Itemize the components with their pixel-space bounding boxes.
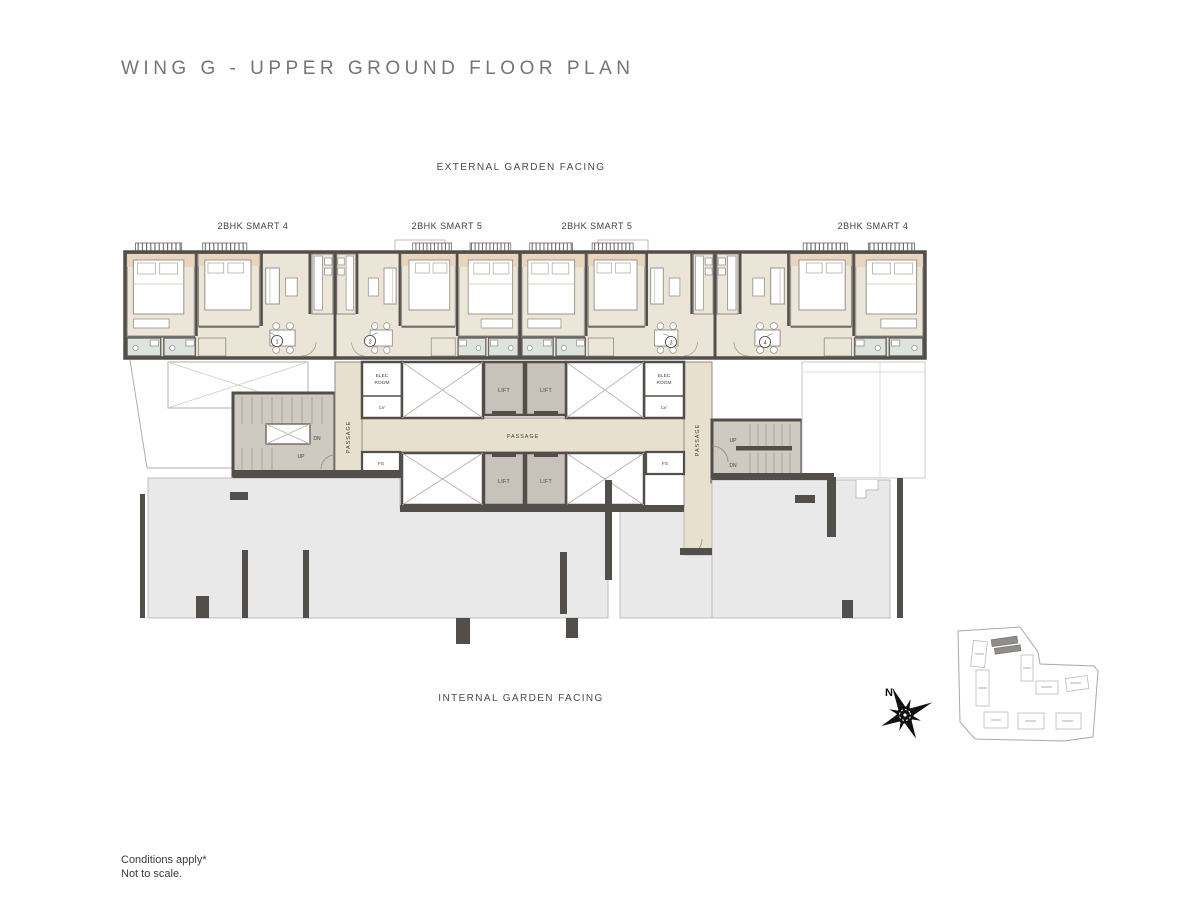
lift-3-label: LIFT	[498, 479, 510, 485]
passage-right-vertical	[684, 362, 712, 555]
floor-plan-drawing: 2BHK SMART 4 2BHK SMART 5 2BHK SMART 5 2…	[0, 0, 1200, 900]
lv-right-label: LV	[661, 405, 667, 411]
right-terrace	[802, 362, 925, 478]
entrance-3-number: 3	[669, 340, 672, 346]
lv-left-label: LV	[379, 405, 385, 411]
unit-3-label: 2BHK SMART 5	[562, 221, 633, 231]
stairwell-left: DN UP	[233, 393, 335, 478]
passage-right-label: PASSAGE	[695, 424, 701, 456]
north-label: N	[885, 687, 893, 699]
entrance-1-number: 1	[275, 339, 278, 345]
unit-2-plan	[335, 243, 520, 358]
key-plan	[958, 627, 1098, 741]
fs-left-label: FS	[378, 461, 384, 467]
lift-1-label: LIFT	[498, 388, 510, 394]
elec-room-left-label-1: ELEC	[376, 373, 389, 379]
stairwell-right: UP DN	[712, 420, 802, 482]
unit-2-label: 2BHK SMART 5	[412, 221, 483, 231]
unit-4-label: 2BHK SMART 4	[838, 221, 909, 231]
passage-left-label: PASSAGE	[346, 421, 352, 453]
apartment-band	[125, 240, 925, 358]
elec-room-right: ELEC ROOM LV	[644, 362, 684, 418]
unit-4-plan	[715, 243, 925, 358]
elec-room-right-label-1: ELEC	[658, 373, 671, 379]
entrance-4-number: 4	[763, 340, 766, 346]
fs-right-label: FS	[662, 461, 668, 467]
stair-right-dn-label: DN	[729, 463, 737, 469]
stair-left-up-label: UP	[298, 454, 306, 460]
north-compass: N	[869, 675, 943, 749]
unit-1-label: 2BHK SMART 4	[218, 221, 289, 231]
stair-left-dn-label: DN	[313, 436, 321, 442]
unit-3-plan	[520, 243, 715, 358]
entrance-2-number: 2	[368, 339, 371, 345]
passage-left-vertical	[335, 362, 362, 478]
elec-room-left: ELEC ROOM LV	[362, 362, 402, 418]
lift-2-label: LIFT	[540, 388, 552, 394]
passage-center-label: PASSAGE	[507, 434, 539, 440]
unit-1-plan	[125, 243, 335, 358]
elec-room-left-label-2: ROOM	[375, 380, 390, 386]
stair-right-up-label: UP	[730, 438, 738, 444]
elec-room-right-label-2: ROOM	[657, 380, 672, 386]
unit-labels: 2BHK SMART 4 2BHK SMART 5 2BHK SMART 5 2…	[218, 221, 909, 231]
lift-4-label: LIFT	[540, 479, 552, 485]
floor-plan-page: WING G - UPPER GROUND FLOOR PLAN EXTERNA…	[0, 0, 1200, 900]
